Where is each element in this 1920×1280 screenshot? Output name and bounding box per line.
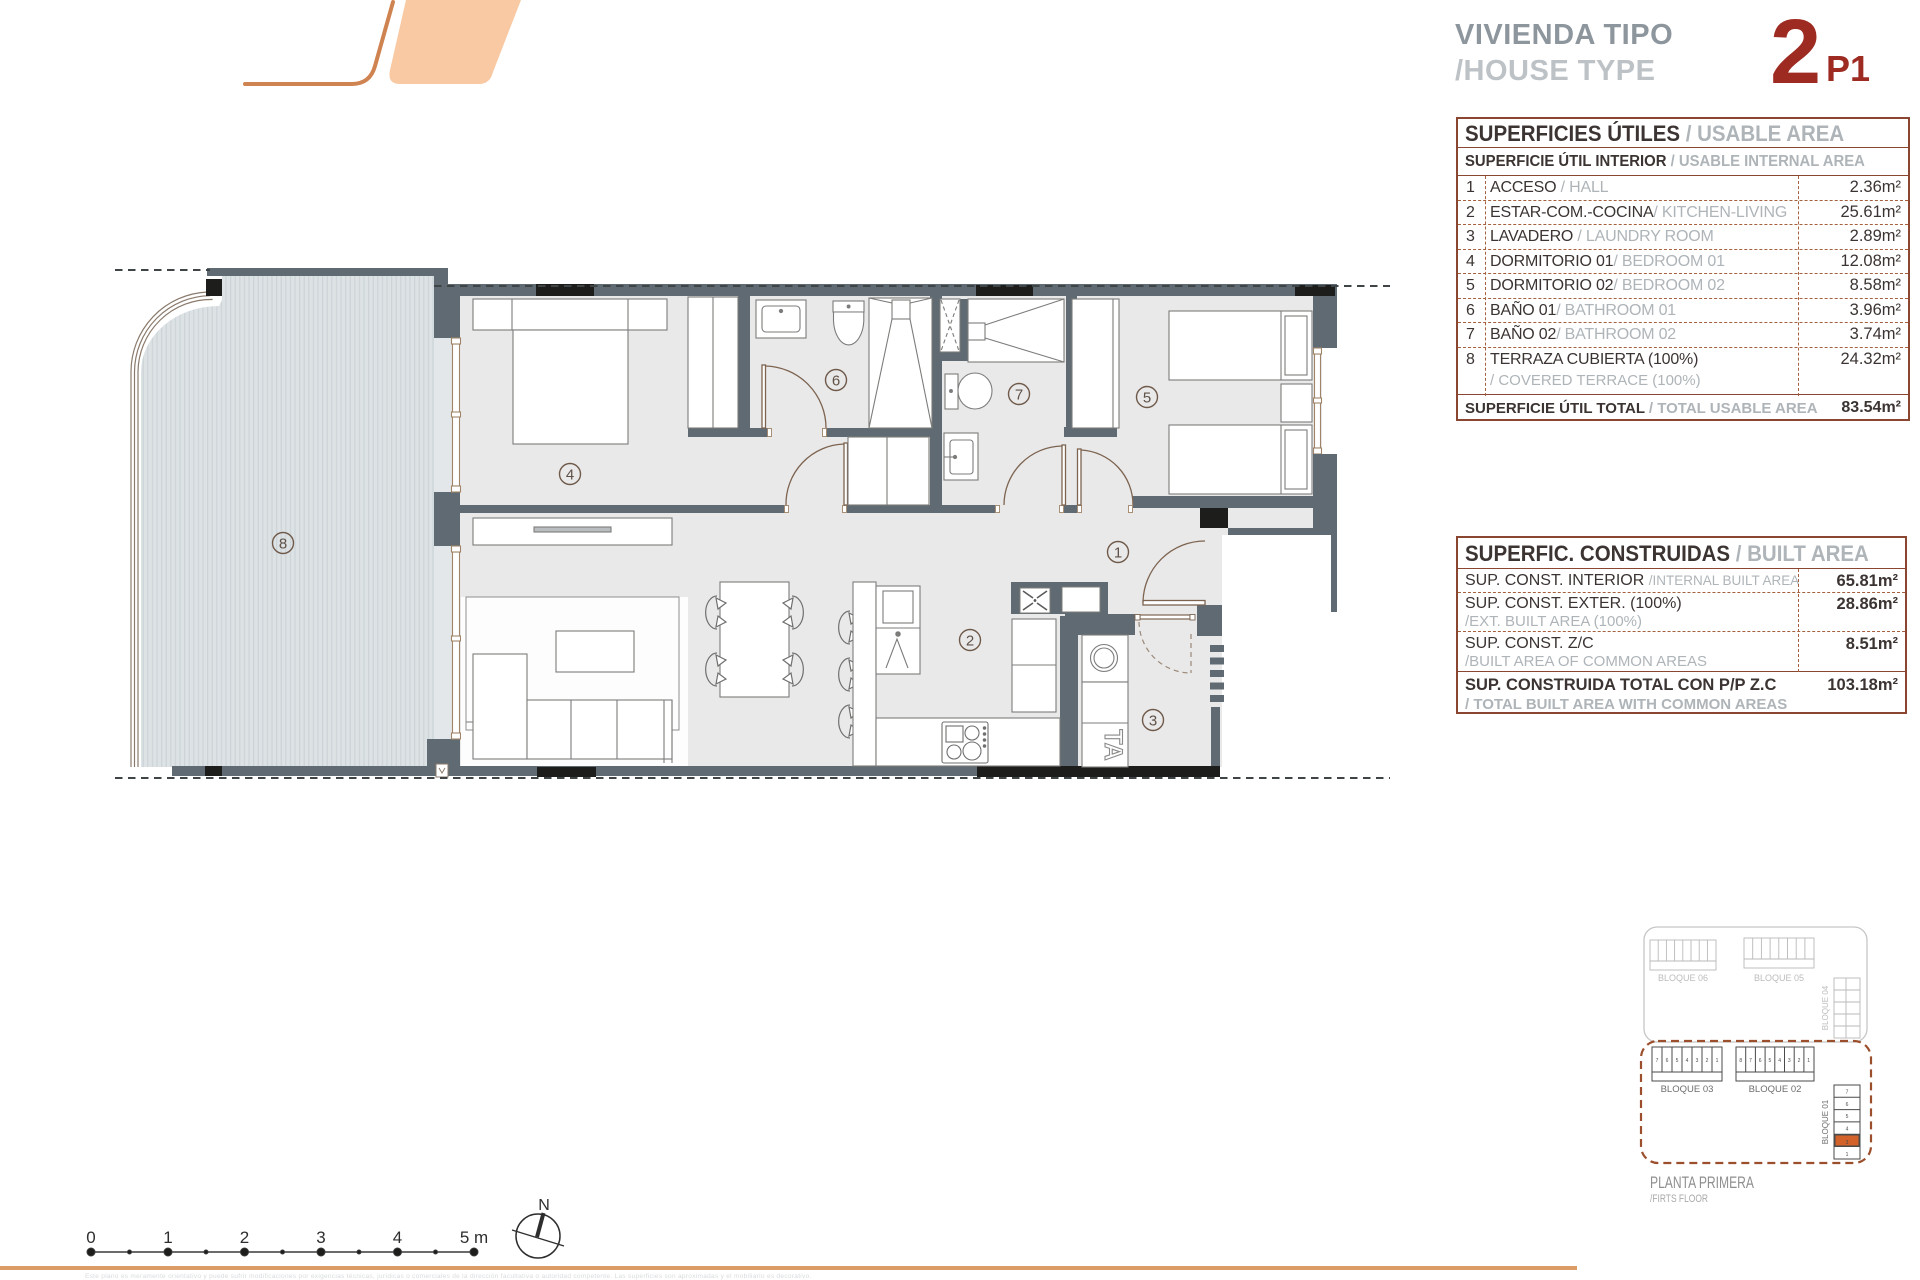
- svg-text:4: 4: [566, 467, 574, 484]
- svg-text:6: 6: [1846, 1102, 1849, 1108]
- svg-text:2: 2: [240, 1228, 249, 1247]
- svg-text:5: 5: [1846, 1114, 1849, 1120]
- svg-text:0: 0: [86, 1228, 95, 1247]
- svg-text:4: 4: [1686, 1058, 1689, 1064]
- svg-text:3: 3: [1788, 1058, 1791, 1064]
- svg-text:4: 4: [1778, 1058, 1781, 1064]
- svg-text:BLOQUE 01: BLOQUE 01: [1821, 1099, 1830, 1144]
- svg-text:4: 4: [393, 1228, 402, 1247]
- svg-text:BLOQUE 02: BLOQUE 02: [1749, 1084, 1802, 1095]
- svg-text:7: 7: [1846, 1090, 1849, 1096]
- svg-text:3: 3: [1149, 713, 1157, 730]
- svg-text:1: 1: [163, 1228, 172, 1247]
- svg-text:BLOQUE 03: BLOQUE 03: [1661, 1084, 1714, 1095]
- svg-text:BLOQUE 05: BLOQUE 05: [1754, 973, 1804, 983]
- svg-text:5: 5: [1769, 1058, 1772, 1064]
- svg-text:1: 1: [1846, 1152, 1849, 1158]
- svg-text:7: 7: [1015, 387, 1023, 404]
- svg-text:7: 7: [1749, 1058, 1752, 1064]
- svg-text:3: 3: [1846, 1140, 1849, 1146]
- svg-text:4: 4: [1846, 1126, 1849, 1132]
- svg-text:TA: TA: [1099, 729, 1127, 760]
- svg-text:3: 3: [316, 1228, 325, 1247]
- svg-text:BLOQUE 04: BLOQUE 04: [1821, 985, 1830, 1030]
- svg-text:8: 8: [279, 536, 287, 553]
- svg-text:6: 6: [1759, 1058, 1762, 1064]
- svg-text:7: 7: [1656, 1058, 1659, 1064]
- svg-text:5: 5: [1676, 1058, 1679, 1064]
- svg-text:PLANTA PRIMERA: PLANTA PRIMERA: [1650, 1173, 1754, 1192]
- svg-text:2: 2: [1798, 1058, 1801, 1064]
- svg-text:1: 1: [1716, 1058, 1719, 1064]
- svg-text:6: 6: [1666, 1058, 1669, 1064]
- svg-text:2: 2: [1706, 1058, 1709, 1064]
- svg-text:5 m: 5 m: [460, 1228, 488, 1247]
- svg-text:N: N: [538, 1197, 550, 1214]
- svg-text:3: 3: [1696, 1058, 1699, 1064]
- svg-text:2: 2: [966, 633, 974, 650]
- svg-text:BLOQUE 06: BLOQUE 06: [1658, 973, 1708, 983]
- svg-text:/FIRTS FLOOR: /FIRTS FLOOR: [1650, 1193, 1708, 1205]
- svg-text:1: 1: [1114, 545, 1122, 562]
- svg-text:1: 1: [1807, 1058, 1810, 1064]
- svg-text:6: 6: [832, 373, 840, 390]
- svg-text:8: 8: [1739, 1058, 1742, 1064]
- svg-text:5: 5: [1143, 390, 1151, 407]
